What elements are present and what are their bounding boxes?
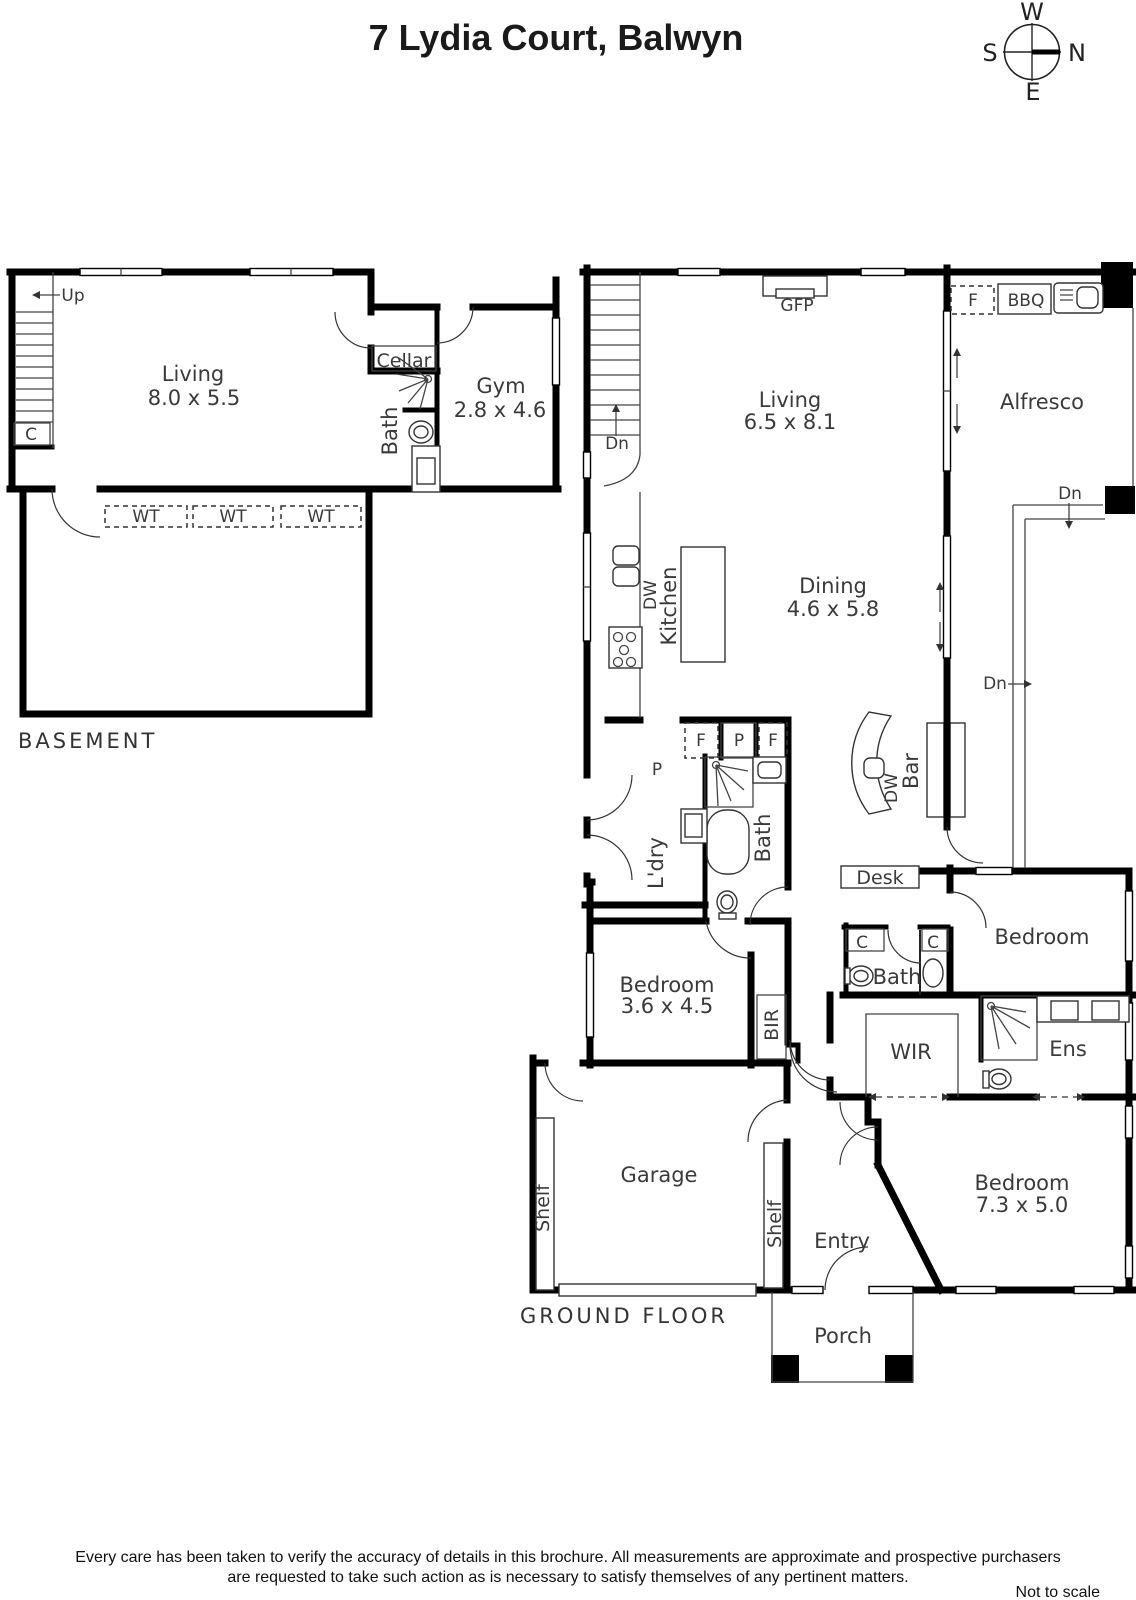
porch-pillar <box>771 1355 799 1383</box>
bathtub-icon <box>707 810 749 874</box>
garage-door-panel <box>559 1284 756 1296</box>
label-b-closet: C <box>25 425 37 445</box>
label-alfresco-fridge: F <box>968 291 978 311</box>
label-c1: C <box>856 933 868 953</box>
label-g-living: Living <box>759 388 821 412</box>
label-entry: Entry <box>814 1229 870 1253</box>
scale-note: Not to scale <box>1016 1584 1101 1600</box>
stairs-up-icon <box>16 272 60 448</box>
label-garage: Garage <box>621 1163 698 1187</box>
label-porch: Porch <box>814 1324 872 1348</box>
label-shelf-left: Shelf <box>532 1183 554 1232</box>
compass-w: W <box>1020 0 1044 26</box>
label-pantry: P <box>652 760 662 780</box>
label-b-bath: Bath <box>378 407 402 456</box>
page-title: 7 Lydia Court, Balwyn <box>369 17 744 58</box>
label-bar: Bar <box>899 753 923 789</box>
label-shelf-right: Shelf <box>764 1199 786 1248</box>
label-gym-dims: 2.8 x 4.6 <box>454 398 547 422</box>
laundry-trough-icon <box>681 809 707 843</box>
label-up: Up <box>61 286 84 306</box>
compass-n: N <box>1068 39 1086 67</box>
alfresco-sink-icon <box>1054 283 1103 313</box>
pillar <box>1105 486 1135 514</box>
basement-doors <box>52 307 473 537</box>
label-bath2: Bath <box>873 965 922 989</box>
label-wt1: WT <box>132 507 160 527</box>
label-ground-floor: GROUND FLOOR <box>520 1304 728 1328</box>
basement-walls <box>10 272 558 714</box>
floor-plan-svg: 7 Lydia Court, Balwyn W N S E <box>0 0 1136 1600</box>
vanity-icon <box>1037 996 1129 1022</box>
label-p1: P <box>734 731 744 751</box>
label-basement-floor: BASEMENT <box>18 729 157 753</box>
cooktop-icon <box>609 627 642 668</box>
porch-pillar <box>885 1355 913 1383</box>
shower-icon <box>981 996 1037 1060</box>
label-bbq: BBQ <box>1008 291 1045 311</box>
down-arrows <box>1008 503 1073 688</box>
label-dining-dims: 4.6 x 5.8 <box>787 597 880 621</box>
label-b-living: Living <box>162 362 224 386</box>
label-desk: Desk <box>856 867 903 889</box>
label-kitchen: Kitchen <box>657 567 681 646</box>
label-alfresco: Alfresco <box>1000 390 1084 414</box>
basin-icon <box>923 959 943 987</box>
header: 7 Lydia Court, Balwyn <box>369 17 744 58</box>
label-wir: WIR <box>890 1040 932 1064</box>
toilet-icon <box>717 891 737 919</box>
label-ldry: L'dry <box>644 837 668 889</box>
label-bedroom1-dims: 7.3 x 5.0 <box>976 1193 1069 1217</box>
label-wt2: WT <box>219 507 247 527</box>
label-f2: F <box>768 731 778 751</box>
label-f1: F <box>696 731 706 751</box>
toilet-icon <box>845 966 873 986</box>
label-dn-path: Dn <box>983 674 1007 694</box>
compass-s: S <box>982 39 997 67</box>
fireplace-icon <box>763 276 827 298</box>
basement-plan: Up Living 8.0 x 5.5 C Cellar Bath Gym 2.… <box>10 269 560 754</box>
label-bedroom1: Bedroom <box>975 1171 1070 1195</box>
footer: Every care has been taken to verify the … <box>75 1549 1100 1600</box>
shower-icon <box>705 757 753 807</box>
pillar <box>1101 262 1133 308</box>
label-c2: C <box>927 933 939 953</box>
label-wt3: WT <box>307 507 335 527</box>
label-g-bath: Bath <box>751 814 775 863</box>
label-b-living-dims: 8.0 x 5.5 <box>148 386 241 410</box>
kitchen-island <box>681 547 725 662</box>
disclaimer-line2: are requested to take such action as is … <box>227 1569 908 1586</box>
label-dn-deck: Dn <box>1058 484 1082 504</box>
vanity-icon <box>412 446 440 492</box>
ground-floor-plan: GFP Living 6.5 x 8.1 Dn F BBQ Alfresco D… <box>520 262 1135 1383</box>
toilet-icon <box>409 421 433 443</box>
vanity-icon <box>753 757 786 783</box>
toilet-icon <box>983 1069 1011 1089</box>
disclaimer-line1: Every care has been taken to verify the … <box>75 1549 1060 1566</box>
bar-sink-icon <box>864 758 884 778</box>
label-bir: BIR <box>761 1009 783 1041</box>
floorplan-page: 7 Lydia Court, Balwyn W N S E <box>0 0 1136 1600</box>
label-bedroom2: Bedroom <box>995 925 1090 949</box>
kitchen-sink-icon <box>613 546 639 565</box>
compass-e: E <box>1025 78 1040 106</box>
label-gym: Gym <box>476 374 525 398</box>
compass-icon: W N S E <box>982 0 1086 106</box>
label-cellar: Cellar <box>377 350 432 372</box>
label-g-living-dims: 6.5 x 8.1 <box>744 410 837 434</box>
label-gfp: GFP <box>780 296 813 316</box>
label-ens: Ens <box>1049 1037 1087 1061</box>
label-bedroom3-dims: 3.6 x 4.5 <box>621 994 714 1018</box>
label-dining: Dining <box>799 574 867 598</box>
label-dn-stairs: Dn <box>605 434 629 454</box>
